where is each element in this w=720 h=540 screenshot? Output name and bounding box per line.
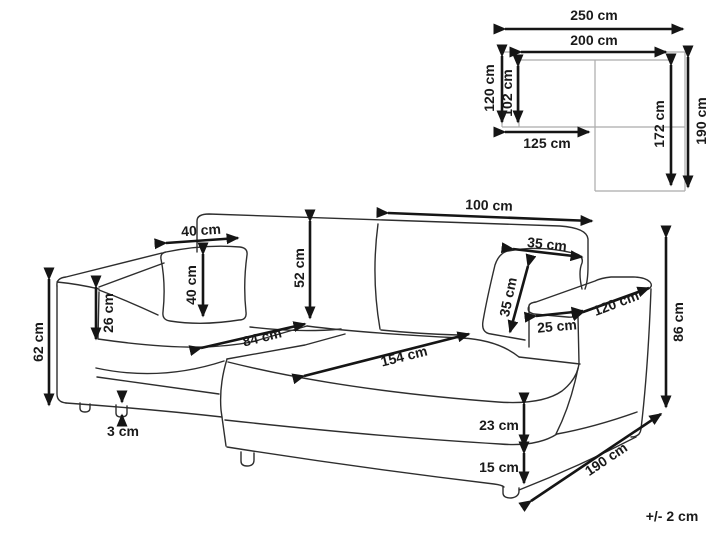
dim-label-left-pillow-height: 40 cm bbox=[184, 265, 198, 305]
chaise-corner-edge bbox=[221, 359, 227, 446]
left-armrest-front-edge bbox=[57, 286, 66, 403]
dim-label-inner-width: 200 cm bbox=[570, 33, 617, 47]
tolerance-note: +/- 2 cm bbox=[646, 509, 699, 523]
dim-label-right-pillow-width: 35 cm bbox=[527, 235, 568, 253]
chaise-leg-2 bbox=[503, 487, 519, 498]
dim-label-backrest-height: 52 cm bbox=[292, 248, 306, 288]
dim-label-inner-depth: 102 cm bbox=[500, 69, 514, 116]
left-seat-front-bottom bbox=[96, 361, 224, 374]
dim-label-total-width: 250 cm bbox=[570, 8, 617, 22]
dim-label-overall-height: 86 cm bbox=[671, 302, 685, 342]
sofa-dimension-arrows bbox=[49, 213, 666, 501]
chaise-cushion-front bbox=[228, 362, 579, 403]
dim-label-left-section: 125 cm bbox=[523, 136, 570, 150]
dim-label-left-pillow-width: 40 cm bbox=[181, 222, 222, 239]
dim-label-leg-height: 3 cm bbox=[107, 424, 139, 438]
dim-label-armrest-height: 62 cm bbox=[31, 322, 45, 362]
chaise-leg-1 bbox=[241, 452, 254, 466]
dim-label-depth-left: 120 cm bbox=[482, 64, 496, 111]
sofa-right-edge bbox=[631, 289, 651, 437]
sofa-dimension-diagram: 250 cm 200 cm 120 cm 102 cm 125 cm 172 c… bbox=[0, 0, 720, 540]
chaise-bottom-left bbox=[227, 447, 504, 487]
dim-label-seat-edge-height: 23 cm bbox=[479, 418, 519, 432]
back-cushion-divider bbox=[375, 224, 380, 329]
left-armrest-inner-edge bbox=[98, 292, 99, 338]
dim-label-back-cushion-width: 100 cm bbox=[465, 197, 513, 213]
dim-label-base-height: 15 cm bbox=[479, 460, 519, 474]
right-armrest-bottom-edge bbox=[519, 357, 580, 364]
sofa-line-drawing bbox=[57, 214, 651, 498]
left-base-seam bbox=[97, 377, 219, 394]
left-armrest-front-top bbox=[57, 282, 99, 289]
dim-label-chaise-inner: 172 cm bbox=[652, 100, 666, 147]
right-armrest-front-right-edge bbox=[578, 317, 579, 363]
dim-label-chaise-total: 190 cm bbox=[694, 97, 708, 144]
dim-label-armrest-width: 25 cm bbox=[537, 317, 578, 334]
dim-label-armrest-above-seat: 26 cm bbox=[101, 293, 115, 333]
chaise-base-seam bbox=[225, 412, 637, 445]
